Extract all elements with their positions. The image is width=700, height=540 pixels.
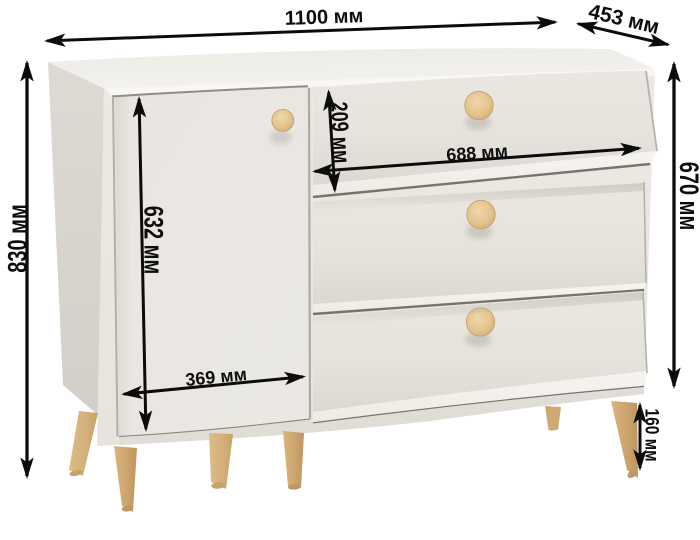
svg-text:830 мм: 830 мм xyxy=(3,204,32,272)
svg-text:160 мм: 160 мм xyxy=(641,408,663,461)
svg-text:670 мм: 670 мм xyxy=(673,162,700,230)
svg-text:209 мм: 209 мм xyxy=(325,101,354,164)
svg-text:632 мм: 632 мм xyxy=(139,206,168,274)
svg-text:1100 мм: 1100 мм xyxy=(284,5,363,30)
